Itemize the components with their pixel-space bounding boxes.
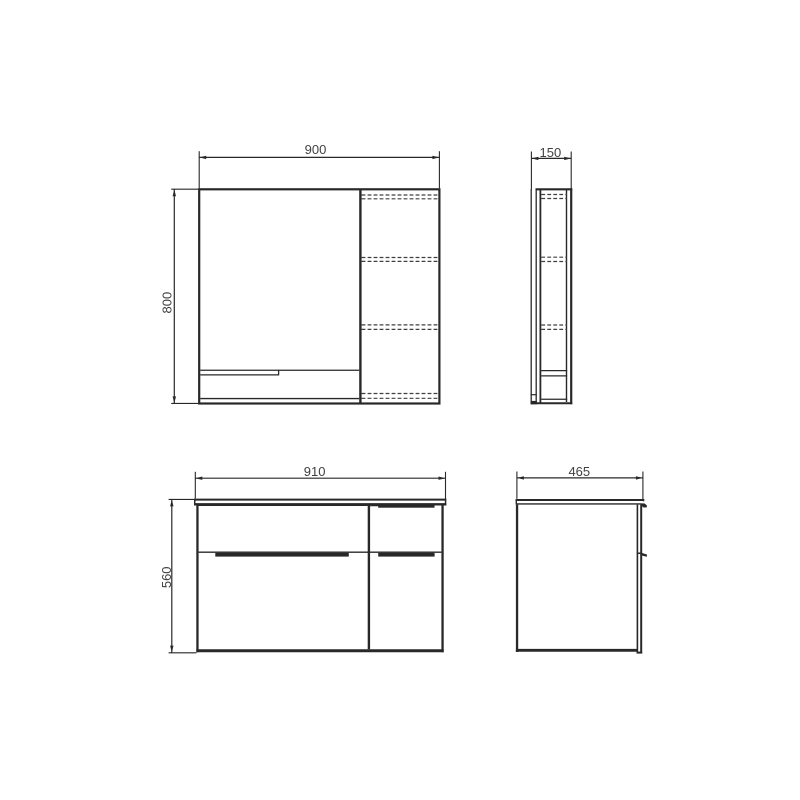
svg-text:150: 150 [540, 145, 562, 160]
svg-text:800: 800 [159, 292, 174, 314]
svg-text:560: 560 [159, 566, 174, 588]
svg-text:900: 900 [305, 142, 327, 157]
svg-text:910: 910 [304, 464, 326, 479]
svg-text:465: 465 [568, 464, 590, 479]
